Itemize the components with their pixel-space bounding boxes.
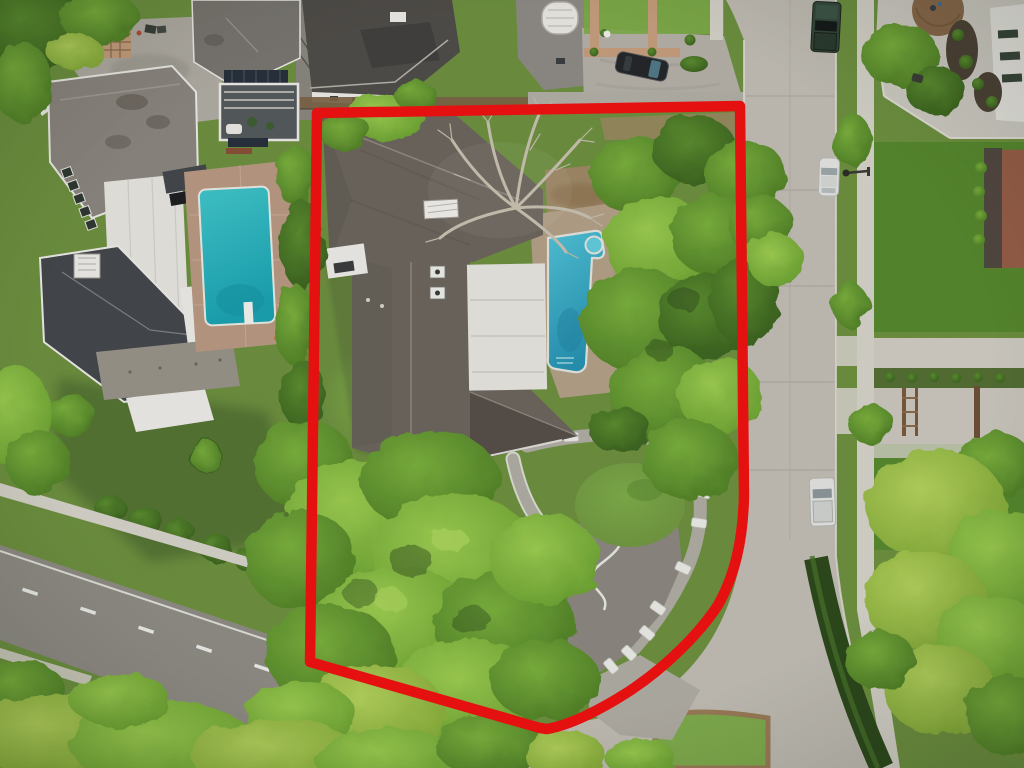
- aerial-photo: [0, 0, 1024, 768]
- vignette: [0, 0, 1024, 768]
